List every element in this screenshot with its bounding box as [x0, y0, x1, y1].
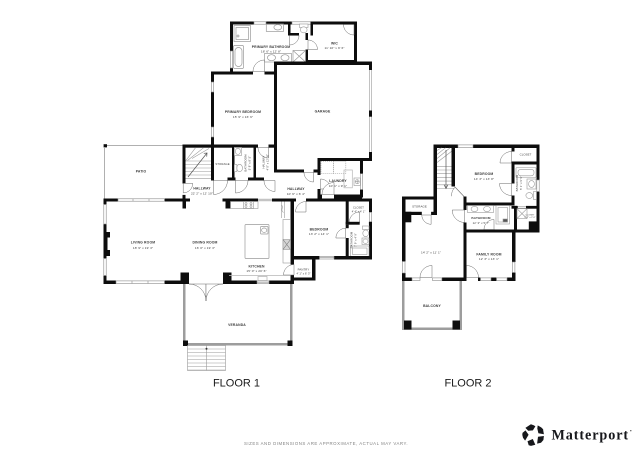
- svg-text:13' 2" x 14' 1": 13' 2" x 14' 1": [309, 232, 329, 236]
- svg-text:18' 6" x 12' 8": 18' 6" x 12' 8": [261, 50, 281, 54]
- svg-text:BATHROOM: BATHROOM: [244, 154, 248, 172]
- svg-text:5' 1" x 9' 9": 5' 1" x 9' 9": [519, 176, 523, 190]
- svg-text:4' 8" x 12' 10": 4' 8" x 12' 10": [267, 154, 270, 171]
- svg-text:11' 10" x 9' 6": 11' 10" x 9' 6": [325, 46, 345, 50]
- svg-text:GARAGE: GARAGE: [315, 110, 331, 114]
- svg-text:PRIMARY BEDROOM: PRIMARY BEDROOM: [225, 110, 261, 114]
- svg-text:15' 9" x 16' 6": 15' 9" x 16' 6": [233, 115, 253, 119]
- svg-text:7' 9" x 4' 9": 7' 9" x 4' 9": [354, 233, 358, 247]
- svg-text:10' 9" x 6' 4": 10' 9" x 6' 4": [287, 192, 305, 196]
- svg-text:15' 0" x 20' 6": 15' 0" x 20' 6": [246, 269, 266, 273]
- svg-text:CLOSET: CLOSET: [526, 215, 536, 217]
- svg-text:16' 0" x 19' 3": 16' 0" x 19' 3": [195, 246, 215, 250]
- svg-text:BATHROOM: BATHROOM: [350, 231, 354, 248]
- svg-text:BALCONY: BALCONY: [423, 304, 441, 308]
- svg-text:SIZES AND DIMENSIONS ARE APPRO: SIZES AND DIMENSIONS ARE APPROXIMATE, AC…: [244, 441, 408, 446]
- svg-text:12' 3" x 5' 7": 12' 3" x 5' 7": [473, 221, 490, 225]
- svg-text:14' 2" x 11' 1": 14' 2" x 11' 1": [421, 251, 441, 255]
- svg-text:LAUNDRY: LAUNDRY: [329, 179, 347, 183]
- svg-text:KITCHEN: KITCHEN: [248, 264, 265, 268]
- svg-text:HALLWAY: HALLWAY: [193, 187, 211, 191]
- svg-text:CLOSET: CLOSET: [520, 152, 532, 156]
- svg-text:BEDROOM: BEDROOM: [310, 228, 329, 232]
- svg-text:DINING ROOM: DINING ROOM: [192, 241, 217, 245]
- svg-text:STORAGE: STORAGE: [215, 162, 229, 166]
- svg-text:4' 1" x 6' 3": 4' 1" x 6' 3": [296, 272, 310, 276]
- svg-text:STORAGE: STORAGE: [412, 205, 427, 209]
- svg-text:PRIMARY BATHROOM: PRIMARY BATHROOM: [252, 45, 291, 49]
- svg-text:BEDROOM: BEDROOM: [475, 172, 494, 176]
- svg-text:5' 9" x 8' 5": 5' 9" x 8' 5": [248, 156, 252, 171]
- svg-text:4' 4" x 4' 1": 4' 4" x 4' 1": [352, 210, 366, 213]
- svg-text:HALLWAY: HALLWAY: [287, 187, 305, 191]
- svg-text:HALLWAY: HALLWAY: [262, 155, 266, 168]
- svg-text:22' 2" x 12' 10": 22' 2" x 12' 10": [191, 192, 213, 196]
- svg-text:PANTRY: PANTRY: [298, 268, 310, 272]
- svg-text:BATHROOM: BATHROOM: [515, 174, 519, 191]
- svg-text:14' 3" x 13' 8": 14' 3" x 13' 8": [474, 177, 494, 181]
- svg-text:CLOSET: CLOSET: [353, 206, 364, 210]
- svg-text:Matterport: Matterport: [552, 428, 630, 444]
- svg-text:18' 9" x 19' 3": 18' 9" x 19' 3": [133, 246, 153, 250]
- svg-text:FAMILY ROOM: FAMILY ROOM: [476, 253, 501, 257]
- svg-text:12' 3" x 13' 1": 12' 3" x 13' 1": [479, 257, 499, 261]
- svg-text:WIC: WIC: [331, 42, 338, 46]
- svg-text:10' 1" x 9' 1": 10' 1" x 9' 1": [329, 184, 347, 188]
- svg-text:VERANDA: VERANDA: [228, 323, 246, 327]
- svg-text:FLOOR 2: FLOOR 2: [444, 378, 491, 390]
- svg-text:BATHROOM: BATHROOM: [471, 216, 490, 220]
- svg-text:FLOOR 1: FLOOR 1: [213, 378, 260, 390]
- svg-text:2' 1" x 2' 6": 2' 1" x 2' 6": [524, 217, 535, 219]
- svg-text:LIVING ROOM: LIVING ROOM: [131, 241, 155, 245]
- svg-text:PATIO: PATIO: [136, 170, 147, 174]
